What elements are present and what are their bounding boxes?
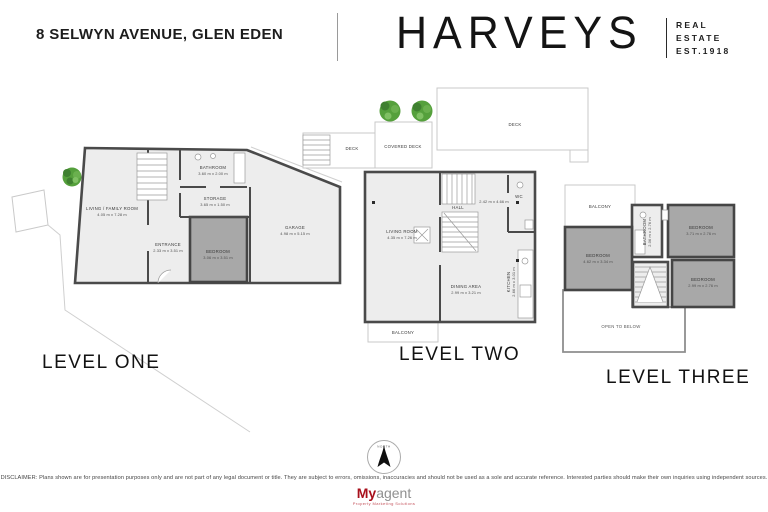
room-dims-bathroom: 3.60 m x 2.00 m [198, 171, 227, 176]
deck-label-right: DECK [509, 122, 522, 127]
room-dims-storage: 3.65 m x 1.50 m [200, 202, 229, 207]
room-label-entrance: ENTRANCE [155, 242, 181, 247]
deck-label-left: DECK [346, 146, 359, 151]
room-label-bedroom: BEDROOM [206, 249, 230, 254]
room-label-living: LIVING ROOM [386, 229, 418, 234]
myagent-logo-suffix: agent [376, 485, 411, 501]
logo-sub-line1: REAL [676, 19, 730, 32]
tree-icon [63, 168, 82, 187]
level-three-floorplan-svg: BALCONY BATHROOM 2.06 m x 2.76 m BEDROOM… [553, 170, 763, 365]
level-two-title: LEVEL TWO [399, 344, 520, 366]
room-label-living-family: LIVING / FAMILY ROOM [86, 206, 138, 211]
deck-stairs [303, 135, 330, 165]
room-label-bedroom-br: BEDROOM [691, 277, 715, 282]
balcony-label: BALCONY [589, 204, 611, 209]
room-label-storage: STORAGE [204, 196, 227, 201]
balcony-label: BALCONY [392, 330, 414, 335]
room-dims-bedroom: 3.06 m x 3.51 m [203, 255, 232, 260]
myagent-logo-prefix: My [357, 485, 376, 501]
covered-deck-label: COVERED DECK [384, 144, 421, 149]
disclaimer-text: DISCLAIMER: Plans shown are for presenta… [0, 475, 768, 481]
logo-divider [666, 18, 667, 58]
stairs [137, 153, 167, 200]
level-three-title: LEVEL THREE [606, 367, 750, 389]
agency-logo: HARVEYS [396, 8, 643, 59]
room-label-bedroom-tr: BEDROOM [689, 225, 713, 230]
myagent-logo-tagline: Property Marketing Solutions [0, 501, 768, 506]
agency-logo-subtext: REAL ESTATE EST.1918 [676, 19, 730, 58]
myagent-logo: Myagent Property Marketing Solutions [0, 486, 768, 506]
room-dims-living-family: 4.05 m x 7.28 m [97, 212, 126, 217]
room-label-dining: DINING AREA [451, 284, 481, 289]
logo-sub-line2: ESTATE [676, 32, 730, 45]
stairwell [442, 212, 478, 252]
hall-dims: 2.42 m x 4.66 m [479, 199, 508, 204]
open-to-below-label: OPEN TO BELOW [601, 324, 641, 329]
room-label-bedroom-left: BEDROOM [586, 253, 610, 258]
level-one-floorplan-svg: LIVING / FAMILY ROOM 4.05 m x 7.28 m BAT… [8, 85, 348, 445]
room-dims-bedroom-br: 2.99 m x 2.76 m [688, 283, 717, 288]
stairs [442, 174, 475, 204]
tree-icon [380, 101, 401, 122]
room-dims-bathroom: 2.06 m x 2.76 m [647, 217, 652, 246]
kitchen-bench [518, 250, 533, 318]
room-dims-kitchen: 2.66 m x 3.01 m [511, 267, 516, 296]
wc-label: WC [515, 194, 523, 199]
room-label-bathroom: BATHROOM [200, 165, 227, 170]
room-dims-bedroom-tr: 3.71 m x 2.76 m [686, 231, 715, 236]
room-dims-dining: 2.99 m x 3.21 m [451, 290, 480, 295]
north-compass-icon: NORTH [364, 436, 404, 476]
floorplan-page: 8 SELWYN AVENUE, GLEN EDEN HARVEYS REAL … [0, 0, 768, 512]
header-divider [337, 13, 338, 61]
deck-areas [303, 88, 588, 168]
hall-label: HALL [452, 205, 464, 210]
myagent-logo-text: Myagent [0, 486, 768, 501]
logo-sub-line3: EST.1918 [676, 45, 730, 58]
tree-icon [412, 101, 433, 122]
room-dims-living: 4.35 m x 7.26 m [387, 235, 416, 240]
level-one-title: LEVEL ONE [42, 352, 160, 374]
room-dims-bedroom-left: 4.62 m x 3.34 m [583, 259, 612, 264]
room-dims-entrance: 2.33 m x 3.51 m [153, 248, 182, 253]
property-address: 8 SELWYN AVENUE, GLEN EDEN [36, 26, 283, 43]
